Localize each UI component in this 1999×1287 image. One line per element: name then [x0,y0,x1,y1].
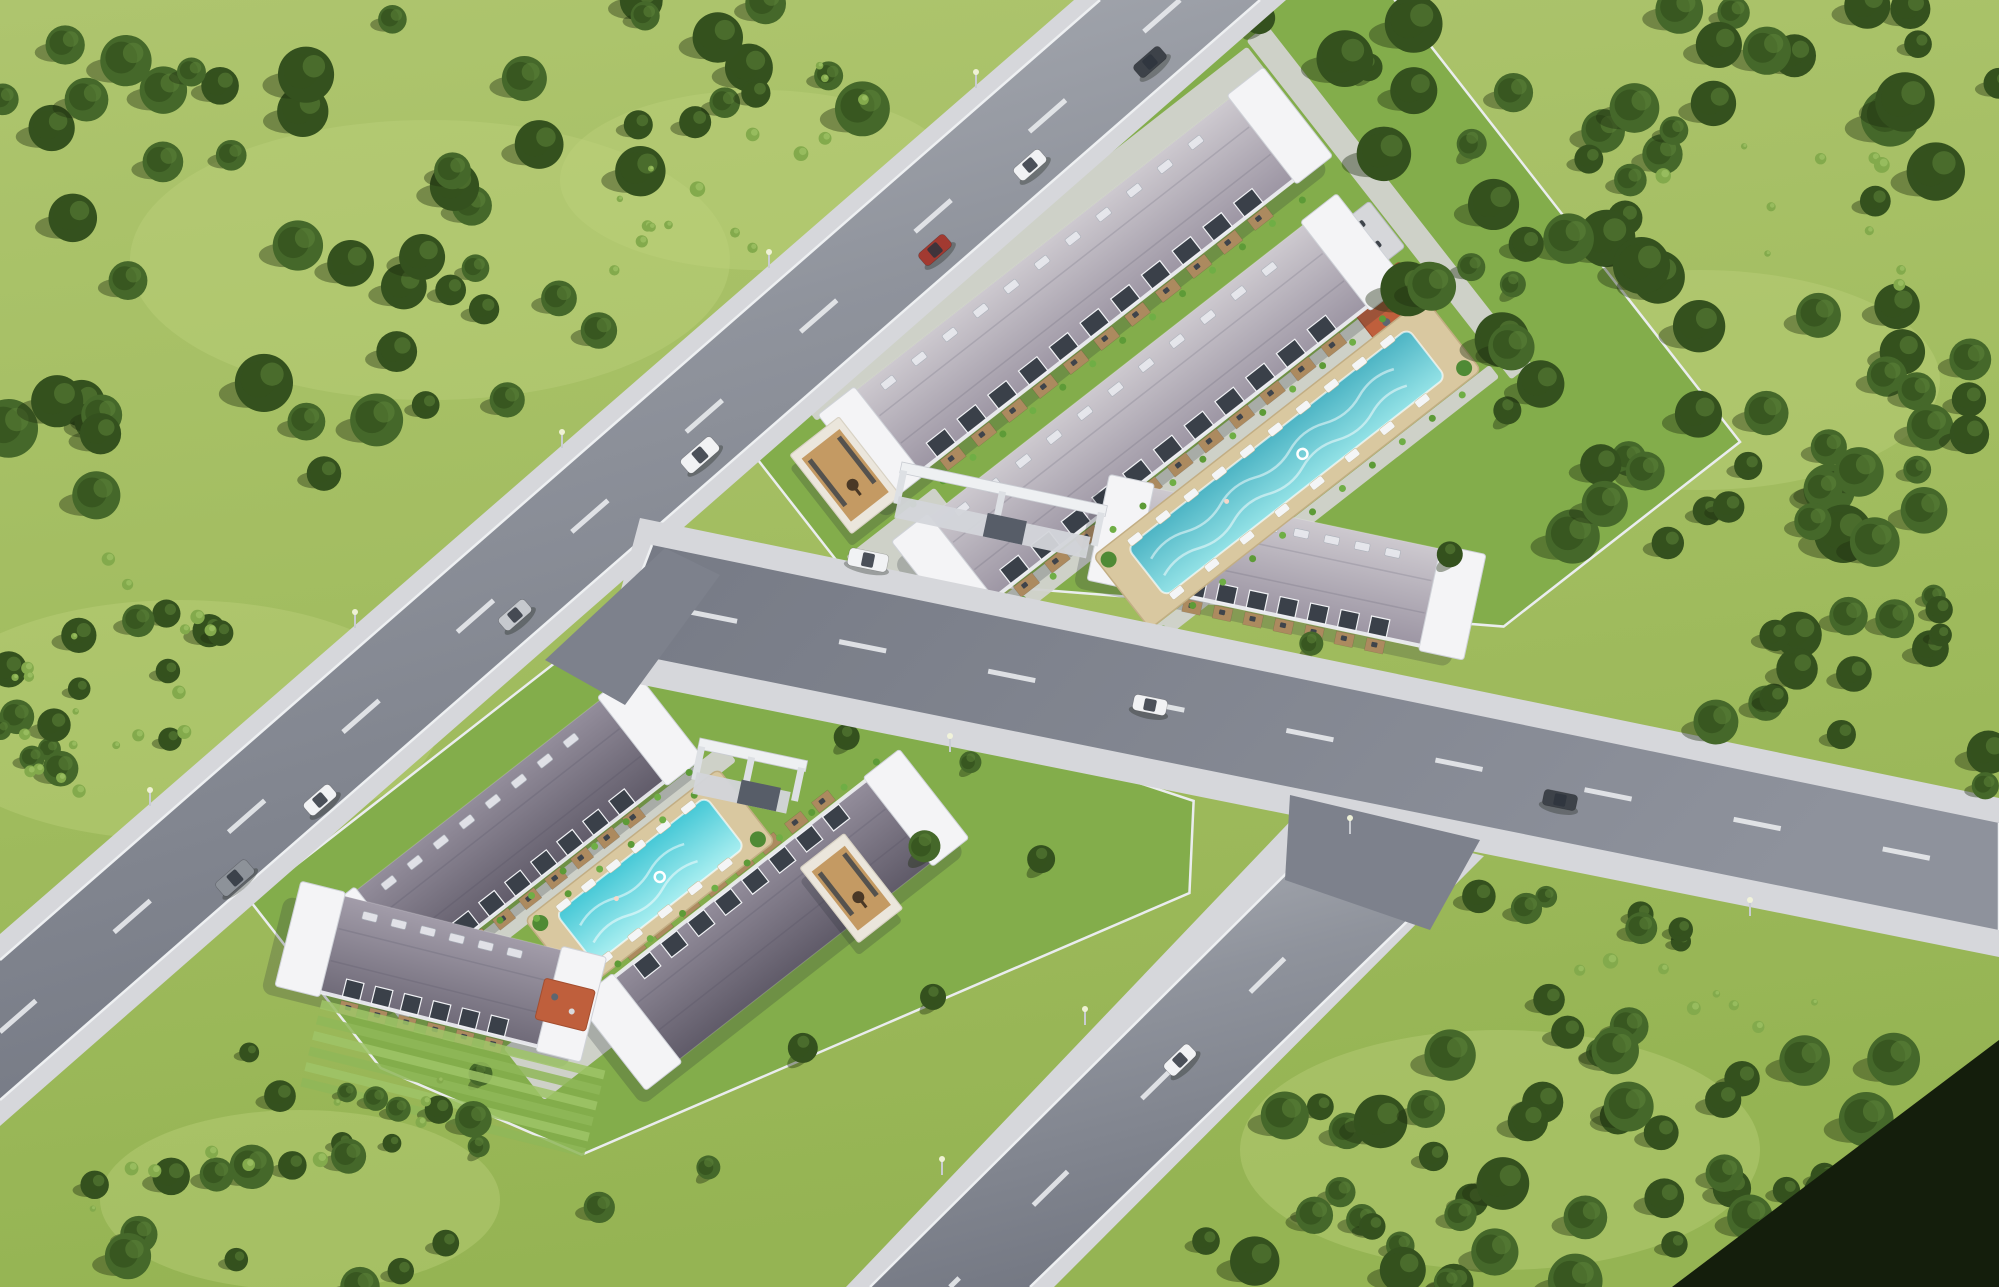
tree-highlight [304,408,319,423]
tree-highlight [437,1100,448,1111]
lamp-head [352,609,358,615]
tree-highlight [1915,378,1930,393]
tree-highlight [474,259,485,270]
tree-highlight [1312,1202,1327,1217]
tree-highlight [1816,300,1834,318]
tree-highlight [1626,1089,1646,1109]
tree-highlight [1968,345,1985,362]
tree-highlight [1492,1235,1511,1254]
bush-highlight [696,183,704,191]
bush-highlight [1868,227,1873,232]
tree-highlight [1856,455,1876,475]
tree-highlight [1722,1160,1737,1175]
bush-highlight [196,611,203,618]
bush-highlight [1662,965,1667,970]
tree-highlight [827,66,839,78]
bush-highlight [751,129,758,136]
bush-highlight [1757,1022,1763,1028]
bush-highlight [1743,144,1746,147]
tree-highlight [536,127,556,147]
lamp-head [947,733,953,739]
tree-highlight [522,63,540,81]
tree-highlight [123,43,144,64]
tree-highlight [63,31,79,47]
tree-highlight [1538,367,1557,386]
tree-highlight [754,83,766,95]
bush-highlight [439,1077,442,1080]
tree-highlight [397,1101,407,1111]
tree-highlight [1846,603,1861,618]
tree-highlight [746,51,765,70]
bush-highlight [115,742,119,746]
field-light-patch [100,1110,500,1287]
tree-highlight [190,62,202,74]
bush-highlight [153,1165,160,1172]
tree-highlight [346,1086,354,1094]
bush-highlight [425,1097,430,1102]
lamp-head [147,787,153,793]
tree-highlight [1,88,14,101]
tree-highlight [597,318,612,333]
bush-highlight [29,767,35,773]
tree-highlight [1612,1034,1631,1053]
tree-highlight [1740,1066,1754,1080]
tree-highlight [1967,421,1983,437]
bush-highlight [1715,991,1719,995]
tree-highlight [1411,74,1430,93]
tree-highlight [1711,88,1729,106]
tree-highlight [1716,29,1734,47]
tree-highlight [78,681,87,690]
tree-highlight [303,55,325,77]
tree-highlight [58,756,72,770]
tree-highlight [643,6,655,18]
bush-highlight [247,1160,253,1166]
tree-highlight [1773,624,1786,637]
tree-highlight [165,604,176,615]
bush-highlight [1609,955,1617,963]
tree-highlight [1583,1202,1600,1219]
tree-highlight [1721,1087,1736,1102]
bush-highlight [107,554,114,561]
tree-highlight [77,623,91,637]
tree-highlight [169,731,178,740]
tree-highlight [1764,398,1782,416]
bush-highlight [1814,1000,1817,1003]
bush-highlight [137,730,143,736]
tree-highlight [1566,221,1586,241]
tree-highlight [444,1234,455,1245]
bush-highlight [619,196,622,199]
tree-highlight [1490,187,1510,207]
tree-highlight [1432,1146,1444,1158]
bush-highlight [26,663,32,669]
tree-highlight [48,741,57,750]
tree-highlight [482,299,494,311]
tree-highlight [295,228,315,248]
tree-highlight [424,395,435,406]
tree-highlight [1884,362,1900,378]
tree-highlight [166,662,176,672]
tree-highlight [1890,1041,1911,1062]
tree-highlight [1672,121,1683,132]
tree-highlight [1727,496,1740,509]
tree-highlight [1900,336,1918,354]
tree-highlight [93,1175,104,1186]
tree-highlight [1873,190,1885,202]
tree-highlight [218,73,233,88]
tree-highlight [1713,706,1731,724]
bush-highlight [640,236,646,242]
bush-highlight [75,709,78,712]
bush-highlight [819,63,823,67]
tree-highlight [505,388,519,402]
tree-highlight [322,461,336,475]
bush-highlight [1819,154,1825,160]
tree-highlight [1477,885,1490,898]
tree-highlight [1696,398,1715,417]
tree-highlight [248,1045,256,1053]
tree-highlight [1821,475,1836,490]
tree-highlight [278,1085,291,1098]
bush-highlight [28,672,33,677]
tree-highlight [1679,921,1689,931]
tree-highlight [1603,218,1626,241]
tree-highlight [1840,724,1852,736]
tree-highlight [219,624,229,634]
bush-highlight [73,634,76,637]
tree-highlight [1916,35,1927,46]
tree-highlight [126,267,142,283]
tree-highlight [1598,450,1615,467]
bush-highlight [23,730,29,736]
tree-highlight [1282,1099,1301,1118]
tree-highlight [1673,1235,1684,1246]
tree-highlight [235,1251,244,1260]
render-stage [0,0,1999,1287]
tree-highlight [70,201,89,220]
tree-highlight [1643,457,1659,473]
bush-highlight [613,266,618,271]
tree-highlight [1764,34,1783,53]
tree-highlight [1772,688,1784,700]
tree-highlight [1511,79,1527,95]
tree-highlight [637,115,649,127]
bush-highlight [77,786,84,793]
tree-highlight [391,9,402,20]
tree-highlight [1204,1231,1215,1242]
tree-highlight [1984,776,1995,787]
aerial-site-plan [0,0,1999,1287]
tree-highlight [1547,989,1560,1002]
tree-highlight [1863,1100,1885,1122]
tree-highlight [136,609,149,622]
tree-highlight [1796,619,1815,638]
bush-highlight [751,244,756,249]
tree-highlight [1852,661,1866,675]
tree-highlight [597,1196,609,1208]
tree-highlight [1319,1097,1330,1108]
lamp-head [939,1156,945,1162]
tree-highlight [1399,1236,1410,1247]
tree-highlight [1545,889,1554,898]
tree-highlight [1525,1107,1541,1123]
tree-highlight [1901,81,1925,105]
bush-highlight [650,166,653,169]
tree-highlight [93,478,112,497]
tree-highlight [291,1155,302,1166]
bush-highlight [130,1163,137,1170]
tree-highlight [1872,525,1892,545]
tree-highlight [348,247,367,266]
tree-highlight [1339,1182,1351,1194]
tree-highlight [1932,151,1955,174]
tree-highlight [374,1090,384,1100]
bush-highlight [72,741,76,745]
tree-highlight [1447,1037,1468,1058]
tree-highlight [54,383,75,404]
bush-highlight [1898,280,1904,286]
lamp-head [1347,815,1353,821]
tree-highlight [1811,508,1826,523]
tree-highlight [84,84,102,102]
bush-highlight [667,221,671,225]
tree-highlight [1602,488,1620,506]
tree-highlight [1792,41,1809,58]
tree-highlight [1892,605,1908,621]
tree-highlight [419,241,437,259]
bush-highlight [1767,251,1770,254]
tree-highlight [450,158,465,173]
tree-highlight [373,401,394,422]
lamp-head [559,429,565,435]
tree-highlight [1746,456,1757,467]
tree-highlight [1827,435,1841,449]
tree-highlight [98,419,114,435]
tree-highlight [169,1163,184,1178]
bush-highlight [823,133,829,139]
tree-highlight [1628,169,1641,182]
tree-highlight [1446,1272,1457,1283]
tree-highlight [394,337,410,353]
tree-highlight [1802,1043,1822,1063]
bush-highlight [1880,159,1888,167]
bush-highlight [177,687,184,694]
tree-highlight [1747,1201,1765,1219]
tree-highlight [1524,232,1538,246]
tree-highlight [1927,411,1946,430]
lamp-head [973,69,979,75]
tree-highlight [7,657,22,672]
bush-highlight [1661,170,1669,178]
tree-highlight [1967,387,1981,401]
bush-highlight [37,765,43,771]
tree-highlight [1732,1,1745,14]
bush-highlight [1900,266,1905,271]
lamp-head [1082,1006,1088,1012]
bush-highlight [318,1153,326,1161]
tree-highlight [15,705,29,719]
tree-highlight [1894,290,1912,308]
lamp-head [1747,897,1753,903]
tree-highlight [1566,1021,1579,1034]
tree-highlight [557,286,571,300]
tree-highlight [1400,1254,1418,1272]
tree-highlight [1470,257,1481,268]
tree-highlight [715,20,735,40]
bush-highlight [1692,1003,1699,1010]
tree-highlight [1639,917,1652,930]
bush-highlight [1770,203,1775,208]
bush-highlight [209,625,215,631]
bush-highlight [799,148,806,155]
tree-highlight [1429,270,1448,289]
bush-highlight [126,580,132,586]
bush-highlight [14,674,18,678]
tree-highlight [125,1240,143,1258]
bush-highlight [1578,966,1584,972]
bush-highlight [862,95,867,100]
tree-highlight [1666,532,1679,545]
tree-highlight [1371,1217,1382,1228]
bush-highlight [184,625,189,630]
tree-highlight [1540,1088,1557,1105]
bush-highlight [1733,1001,1738,1006]
tree-highlight [637,154,657,174]
tree-highlight [1785,1181,1796,1192]
tree-highlight [693,111,706,124]
vehicle-glass [1143,698,1157,712]
tree-highlight [1631,91,1651,111]
tree-highlight [1509,331,1528,350]
bush-highlight [92,1206,95,1209]
tree-highlight [160,148,176,164]
tree-highlight [1938,600,1949,611]
tree-highlight [1500,1165,1521,1186]
tree-highlight [1410,4,1433,27]
tree-highlight [229,145,241,157]
tree-highlight [1659,1120,1673,1134]
bush-highlight [183,726,190,733]
vehicle-glass [1553,793,1567,807]
tree-highlight [399,1262,410,1273]
tree-highlight [1525,898,1538,911]
tree-highlight [1795,654,1812,671]
tree-highlight [1939,627,1948,636]
bush-highlight [734,229,739,234]
tree-highlight [52,713,65,726]
tree-highlight [1587,149,1599,161]
bush-highlight [336,1100,340,1104]
tree-highlight [215,1163,229,1177]
bush-highlight [210,1147,216,1153]
tree-highlight [1252,1244,1272,1264]
lamp-head [766,249,772,255]
tree-highlight [346,1144,360,1158]
tree-highlight [1377,1103,1398,1124]
tree-highlight [1341,39,1364,62]
tree-highlight [471,1106,486,1121]
bush-highlight [824,75,828,79]
bush-highlight [60,774,65,779]
tree-highlight [449,279,461,291]
tree-highlight [1381,135,1403,157]
tree-highlight [260,363,283,386]
tree-highlight [137,1221,152,1236]
bush-highlight [650,223,655,228]
tree-highlight [1627,1013,1643,1029]
tree-highlight [1696,308,1717,329]
tree-highlight [1572,1262,1594,1284]
tree-highlight [1916,460,1927,471]
tree-highlight [1459,1204,1472,1217]
tree-highlight [1638,246,1661,269]
tree-highlight [1662,1184,1678,1200]
tree-highlight [30,749,40,759]
tree-highlight [1424,1096,1439,1111]
tree-highlight [1921,494,1940,513]
bush-highlight [420,1118,426,1124]
tree-highlight [391,1137,399,1145]
